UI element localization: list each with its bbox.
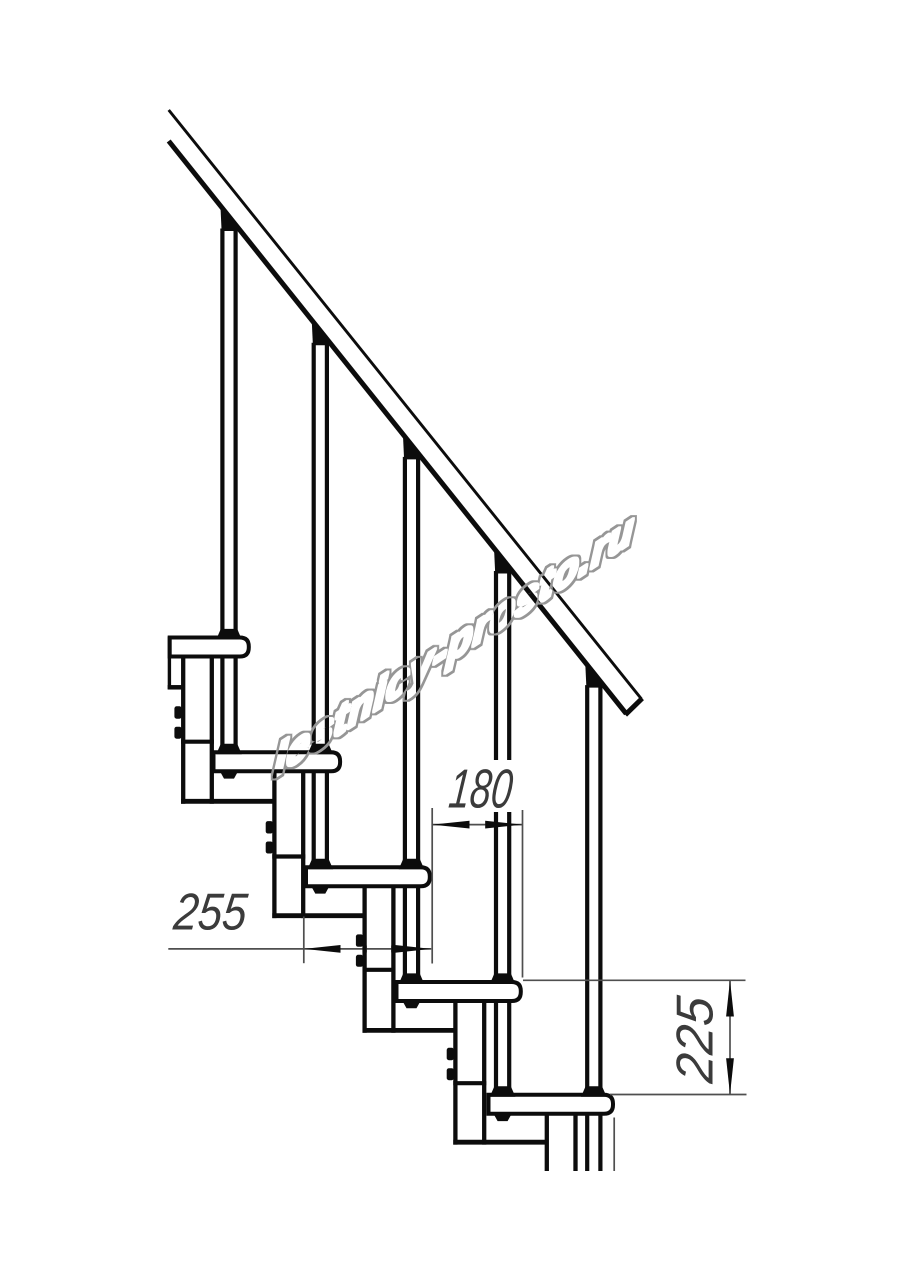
svg-text:225: 225 (667, 993, 725, 1087)
svg-text:255: 255 (170, 883, 250, 941)
svg-text:180: 180 (446, 758, 516, 820)
